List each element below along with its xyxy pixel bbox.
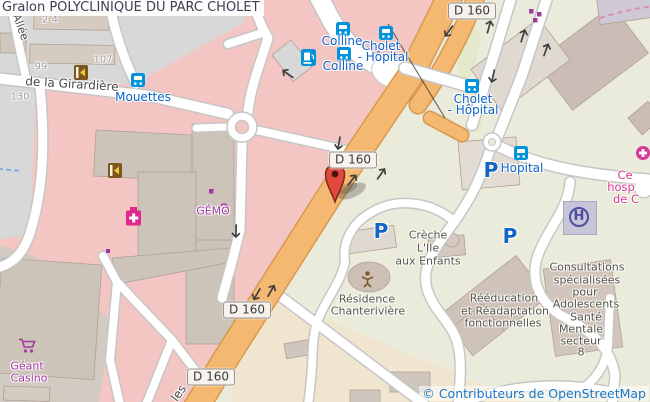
road-badge-d160: D 160 <box>329 152 377 169</box>
page-title: Gralon POLYCLINIQUE DU PARC CHOLET <box>0 0 264 16</box>
map-base-layer <box>0 0 650 402</box>
roundabout <box>227 112 257 142</box>
road-badge-d160: D 160 <box>448 3 496 20</box>
helipad-icon: H <box>563 201 597 235</box>
road-badge-d160: D 160 <box>223 302 271 319</box>
road-badge-d160: D 160 <box>187 369 235 386</box>
osm-attribution-link[interactable]: © Contributeurs de OpenStreetMap <box>419 386 649 401</box>
map-canvas[interactable]: D 160 D 160 D 160 D 160 Mouettes Colline… <box>0 0 650 402</box>
